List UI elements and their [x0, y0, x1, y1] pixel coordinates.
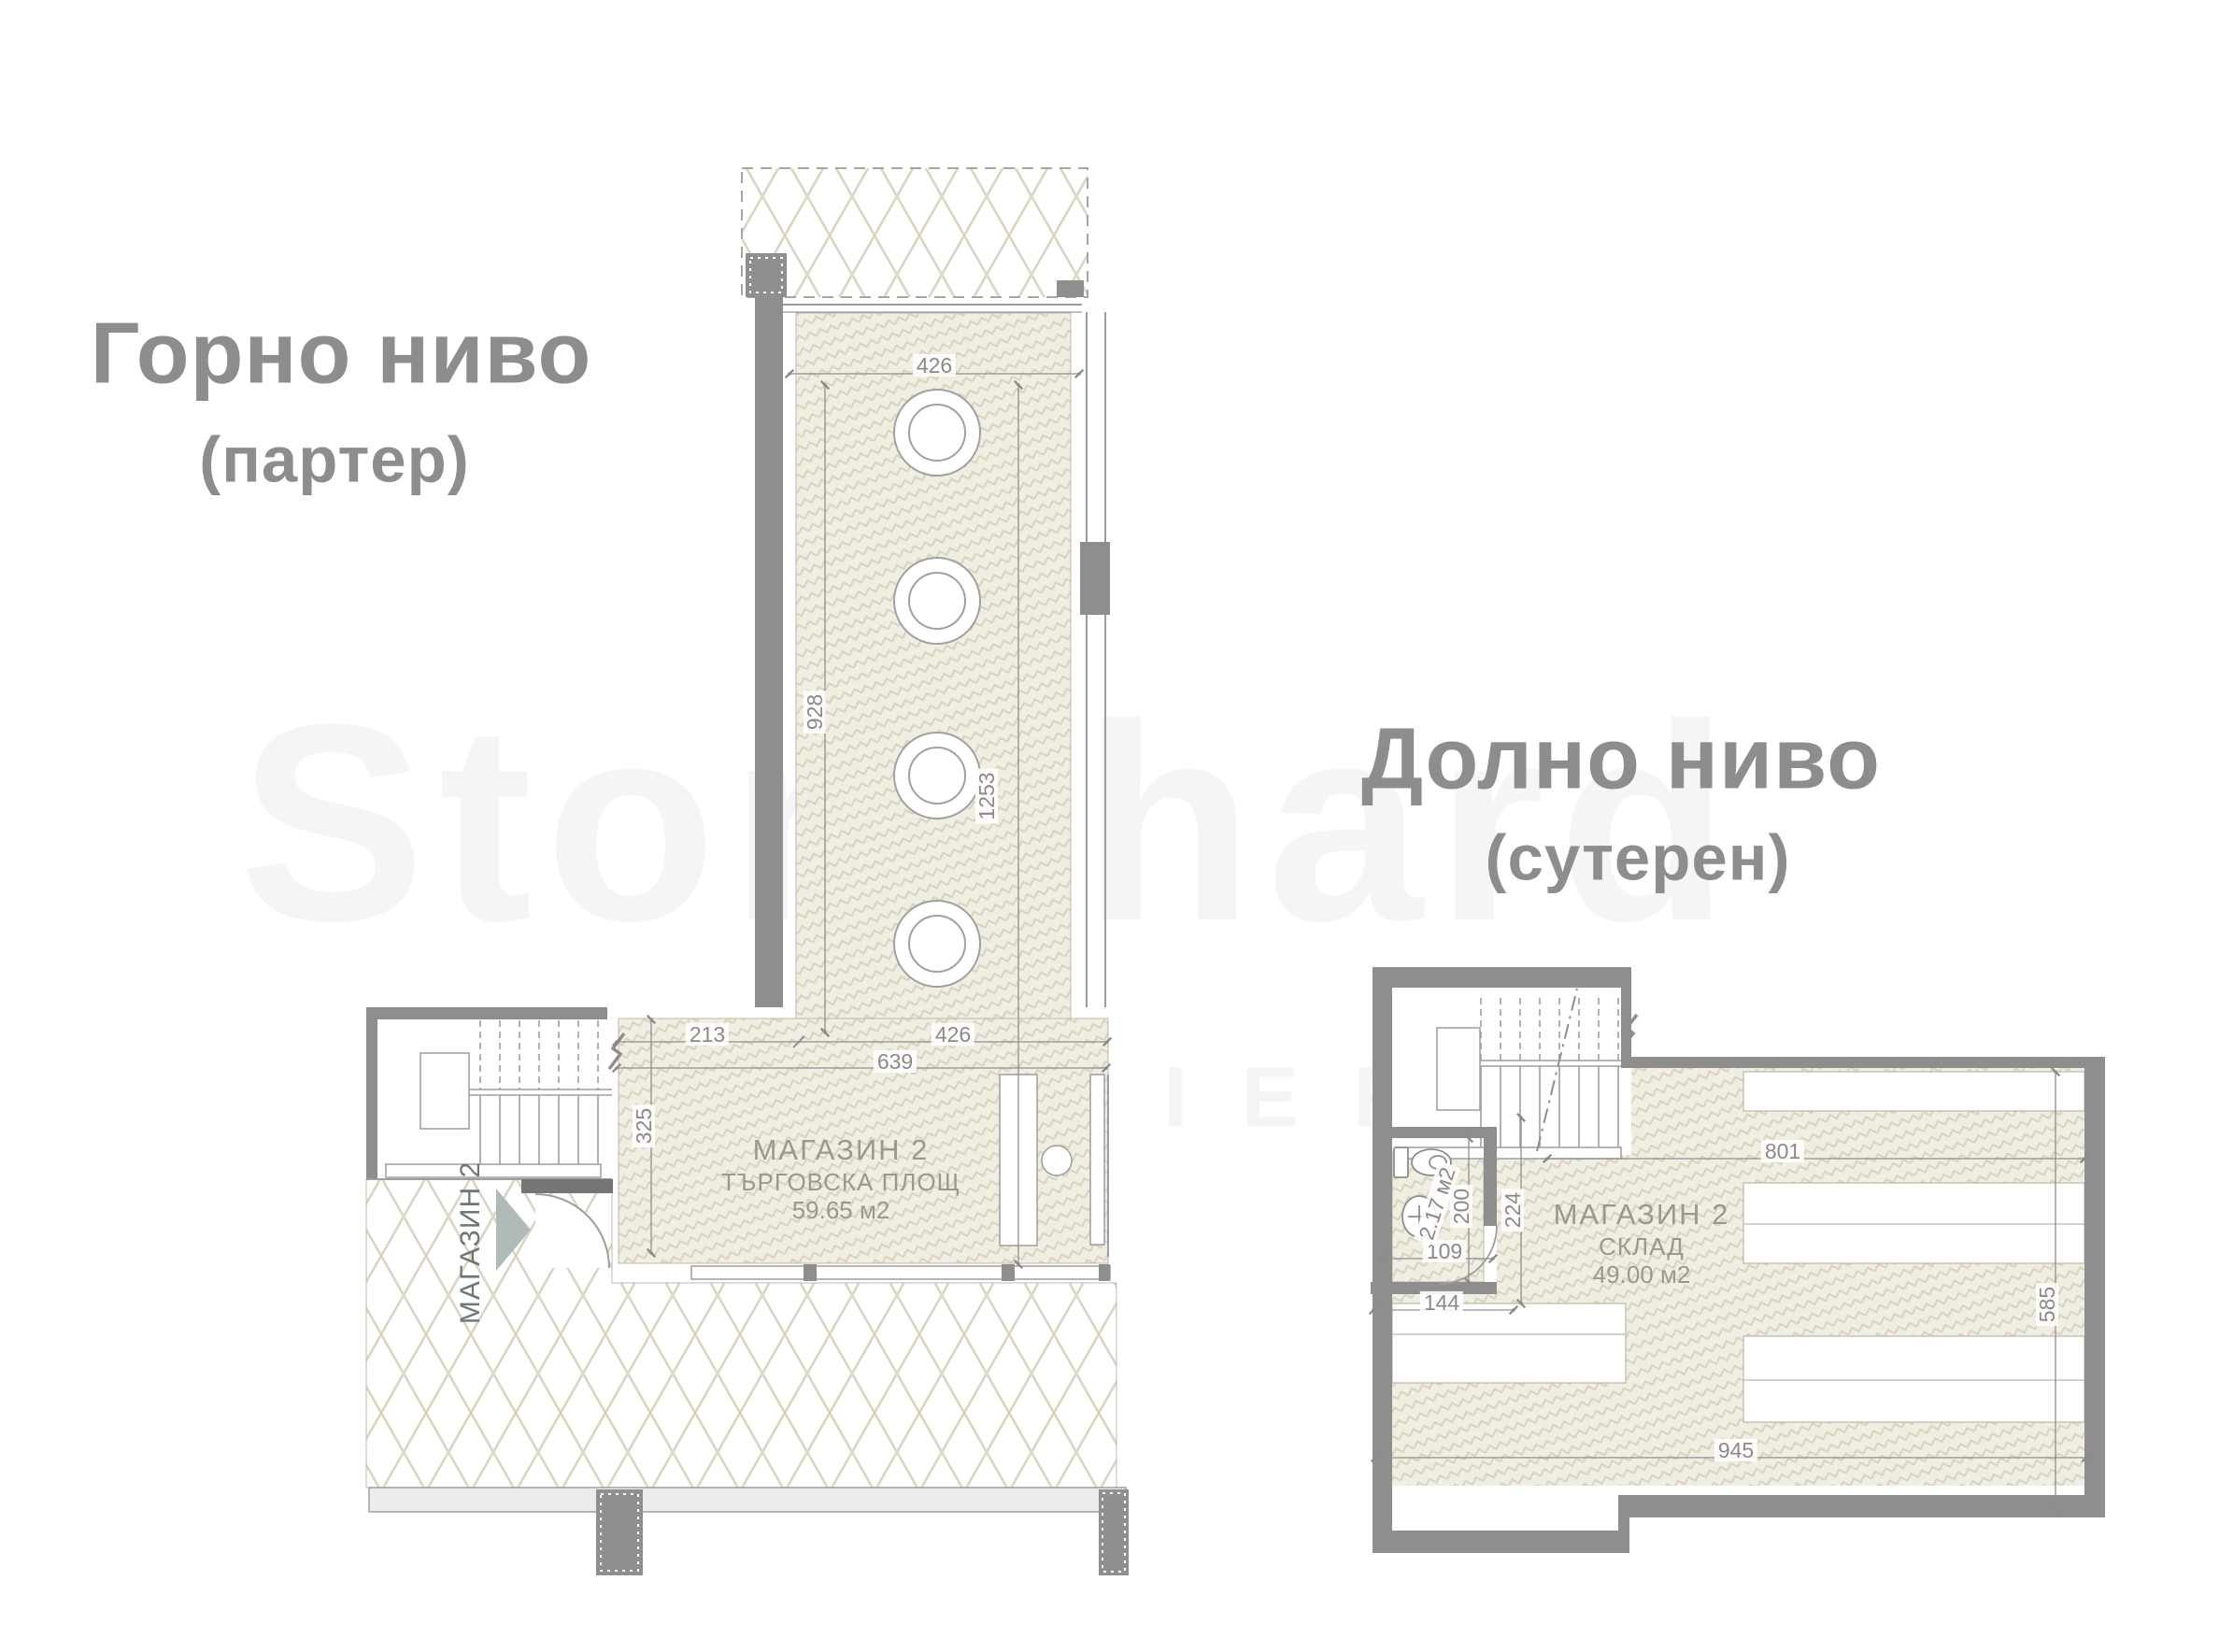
room-area: 59.65 м2 [721, 1196, 960, 1225]
floorplan-page: Stonchard PREMIER [0, 0, 2219, 1652]
upper-adjacent-block [742, 168, 1088, 297]
dim-stair-span: 213 [686, 1023, 729, 1046]
dim-inner-width: 639 [874, 1050, 917, 1073]
dim-top-width-lower: 801 [1761, 1140, 1804, 1162]
dim-shelf-width: 144 [1420, 1291, 1463, 1314]
trade-room-label: МАГАЗИН 2 ТЪРГОВСКА ПЛОЩ 59.65 м2 [721, 1133, 960, 1225]
storage-room-label: МАГАЗИН 2 СКЛАД 49.00 м2 [1554, 1198, 1730, 1289]
dim-right-height: 585 [2036, 1283, 2058, 1326]
lower-level-title: Долно ниво [1361, 709, 1881, 809]
lower-level-plan [1371, 967, 2105, 1553]
dim-upper-height: 928 [804, 691, 826, 733]
room-area: 49.00 м2 [1554, 1260, 1730, 1289]
pier-top-right [1057, 280, 1084, 297]
stair-block-left-wall [366, 1007, 377, 1179]
plan-graphics [0, 0, 2219, 1652]
entry-label: МАГАЗИН 2 [455, 1161, 487, 1324]
stair-block-top-wall [366, 1007, 607, 1019]
lower-level-subtitle: (сутерен) [1486, 821, 1791, 895]
room-name: МАГАЗИН 2 [1554, 1198, 1730, 1232]
dim-total-height: 1253 [975, 768, 998, 823]
dim-entry-depth: 325 [633, 1104, 655, 1147]
dim-lower-width: 426 [932, 1023, 974, 1046]
upper-level-subtitle: (партер) [199, 423, 470, 497]
dim-top-width: 426 [913, 354, 956, 377]
staircase-upper-level [366, 1019, 624, 1179]
room-type: СКЛАД [1554, 1232, 1730, 1261]
wall-left [755, 297, 783, 1007]
dim-stair-depth: 224 [1501, 1189, 1524, 1232]
shopfront-window [691, 1264, 1110, 1281]
dim-bottom-width: 945 [1714, 1439, 1757, 1461]
upper-level-title: Горно ниво [91, 304, 592, 404]
room-name: МАГАЗИН 2 [721, 1133, 960, 1168]
sidewalk-band [369, 1488, 1126, 1512]
room-type: ТЪРГОВСКА ПЛОЩ [721, 1168, 960, 1197]
wall-pier-right [1080, 542, 1110, 615]
pier-top-left [746, 253, 787, 297]
